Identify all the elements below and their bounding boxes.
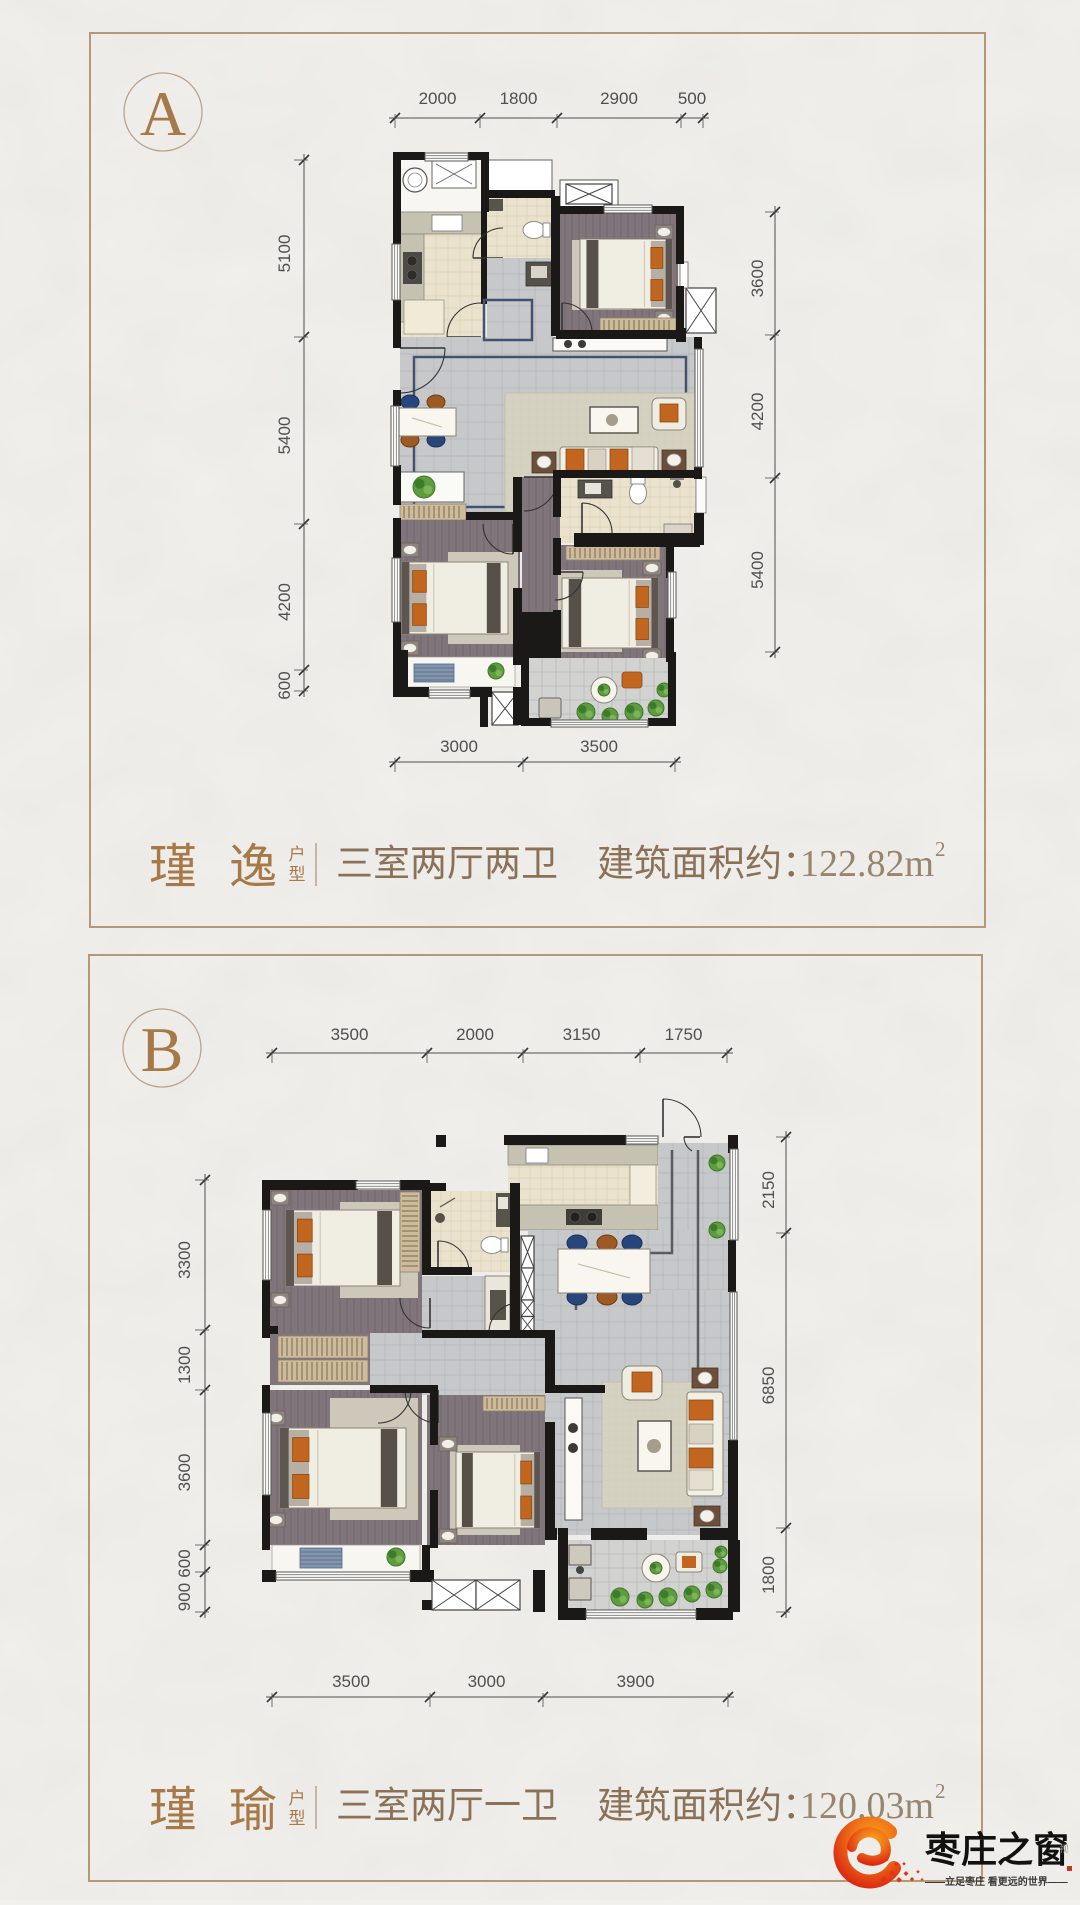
svg-text:3500: 3500: [332, 1672, 370, 1691]
svg-text:600: 600: [175, 1549, 194, 1577]
svg-text:建筑面积约：: 建筑面积约：: [597, 1785, 819, 1827]
svg-text:1800: 1800: [500, 89, 538, 108]
svg-text:5400: 5400: [748, 551, 767, 589]
svg-text:三室两厅两卫: 三室两厅两卫: [336, 843, 558, 885]
svg-text:3300: 3300: [175, 1241, 194, 1279]
svg-text:型: 型: [289, 865, 306, 884]
svg-text:3000: 3000: [440, 737, 478, 756]
svg-text:2: 2: [935, 1779, 946, 1803]
svg-text:型: 型: [289, 1809, 306, 1828]
svg-text:500: 500: [678, 89, 706, 108]
svg-text:5400: 5400: [275, 417, 294, 455]
svg-text:A: A: [140, 78, 186, 149]
svg-text:1800: 1800: [759, 1556, 778, 1594]
svg-text:3500: 3500: [331, 1025, 369, 1044]
svg-text:瑾 逸: 瑾 逸: [149, 841, 287, 894]
svg-text:2900: 2900: [600, 89, 638, 108]
svg-text:——立足枣庄 看更远的世界——: ——立足枣庄 看更远的世界——: [925, 1875, 1068, 1888]
svg-text:900: 900: [175, 1583, 194, 1611]
svg-text:枣庄之窗: 枣庄之窗: [924, 1830, 1069, 1870]
svg-text:3000: 3000: [468, 1672, 506, 1691]
svg-text:视: 视: [1059, 1843, 1068, 1854]
svg-text:6850: 6850: [759, 1367, 778, 1405]
svg-text:3500: 3500: [580, 737, 618, 756]
svg-text:2000: 2000: [456, 1025, 494, 1044]
svg-text:4200: 4200: [748, 393, 767, 431]
svg-text:B: B: [141, 1014, 184, 1085]
svg-text:建筑面积约：: 建筑面积约：: [597, 843, 819, 885]
svg-text:4200: 4200: [275, 583, 294, 621]
svg-text:户: 户: [289, 1789, 306, 1808]
svg-text:2: 2: [935, 837, 946, 861]
svg-text:600: 600: [275, 671, 294, 699]
svg-text:122.82m: 122.82m: [800, 843, 934, 885]
svg-text:户: 户: [289, 845, 306, 864]
svg-text:3600: 3600: [175, 1454, 194, 1492]
svg-text:3150: 3150: [563, 1025, 601, 1044]
svg-text:1300: 1300: [175, 1346, 194, 1384]
svg-text:3900: 3900: [617, 1672, 655, 1691]
svg-text:3600: 3600: [748, 260, 767, 298]
svg-text:2000: 2000: [419, 89, 457, 108]
svg-text:1750: 1750: [665, 1025, 703, 1044]
svg-text:2150: 2150: [759, 1171, 778, 1209]
svg-text:三室两厅一卫: 三室两厅一卫: [336, 1785, 558, 1827]
svg-text:瑾 瑜: 瑾 瑜: [149, 1784, 287, 1837]
svg-text:5100: 5100: [275, 235, 294, 273]
